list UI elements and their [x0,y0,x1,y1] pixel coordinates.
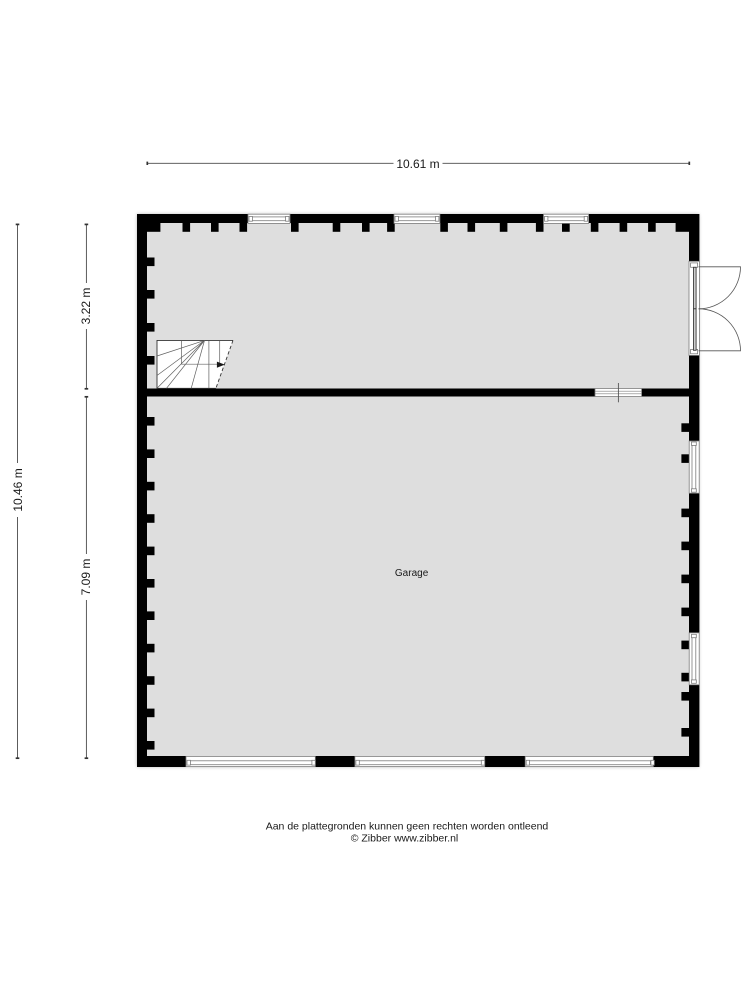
svg-text:10.46 m: 10.46 m [11,468,25,511]
svg-text:© Zibber www.zibber.nl: © Zibber www.zibber.nl [351,833,459,845]
svg-text:Garage: Garage [395,568,429,579]
svg-text:7.09 m: 7.09 m [79,559,93,596]
svg-text:Aan de plattegronden kunnen ge: Aan de plattegronden kunnen geen rechten… [266,821,549,833]
svg-text:3.22 m: 3.22 m [79,288,93,325]
svg-text:10.61 m: 10.61 m [396,157,439,171]
